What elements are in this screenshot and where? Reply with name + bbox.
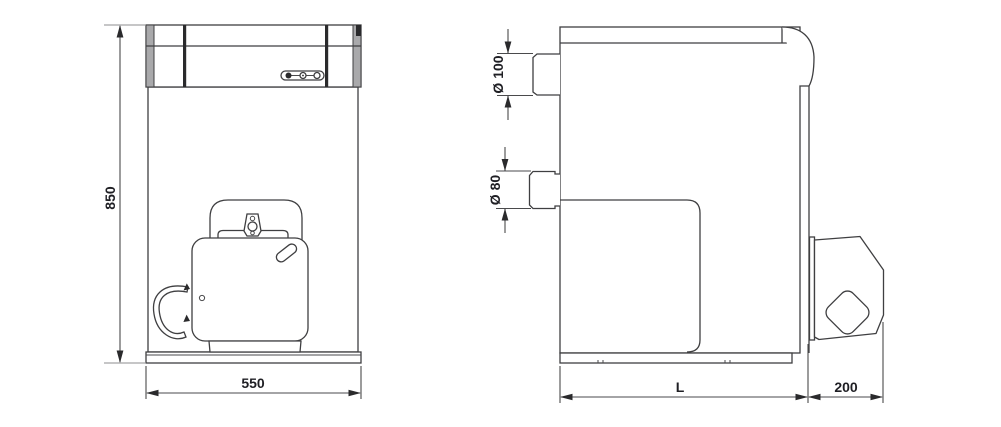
boiler-side-body xyxy=(560,27,800,353)
button-right xyxy=(314,73,320,79)
arrow-right xyxy=(871,394,884,401)
burner-flange xyxy=(209,341,301,352)
side-burner xyxy=(810,237,884,341)
panel-divider-left xyxy=(183,25,186,87)
arrow-left xyxy=(808,394,821,401)
arrow-up xyxy=(117,25,124,38)
panel-divider-right xyxy=(325,25,328,87)
arrow-down xyxy=(502,159,509,171)
label-width: 550 xyxy=(241,375,265,391)
label-depth: L xyxy=(676,379,685,395)
arrow-down xyxy=(505,42,512,54)
technical-drawing-canvas: 850 550 xyxy=(0,0,1001,427)
arrow-down xyxy=(117,351,124,364)
arrow-up xyxy=(505,96,512,108)
arrow-left xyxy=(560,394,573,401)
button-left xyxy=(286,73,292,79)
arrow-left xyxy=(146,390,159,397)
burner-flange-side xyxy=(810,237,815,340)
label-flue-diameter: Ø 100 xyxy=(490,55,506,93)
arrow-right xyxy=(796,394,809,401)
side-base-plinth xyxy=(560,353,792,363)
label-height: 850 xyxy=(102,186,118,210)
burner-clamp xyxy=(244,214,261,236)
display-strip xyxy=(281,71,324,80)
label-burner-projection: 200 xyxy=(834,379,858,395)
dimension-connection-80: Ø 80 xyxy=(487,147,531,233)
arrow-up xyxy=(502,209,509,221)
control-panel-band xyxy=(146,25,361,87)
arrow-right xyxy=(349,390,362,397)
dimension-width-550: 550 xyxy=(146,366,361,399)
panel-left-edge xyxy=(146,25,154,87)
label-connection-diameter: Ø 80 xyxy=(487,175,503,206)
flue-stub xyxy=(533,54,560,95)
side-view xyxy=(530,27,884,363)
front-base-plinth xyxy=(146,352,361,363)
connection-stub xyxy=(530,172,561,209)
clamp-knob xyxy=(248,222,257,231)
button-middle-dot xyxy=(302,75,304,77)
boiler-dimension-drawing: 850 550 xyxy=(0,0,1001,427)
burner-housing-side xyxy=(815,237,884,340)
panel-corner-mark xyxy=(356,25,361,36)
front-view xyxy=(146,25,361,363)
burner-cover-plate xyxy=(192,238,308,341)
control-panel xyxy=(146,25,361,87)
dimension-height-850: 850 xyxy=(102,25,146,363)
dimension-flue-100: Ø 100 xyxy=(490,29,533,120)
